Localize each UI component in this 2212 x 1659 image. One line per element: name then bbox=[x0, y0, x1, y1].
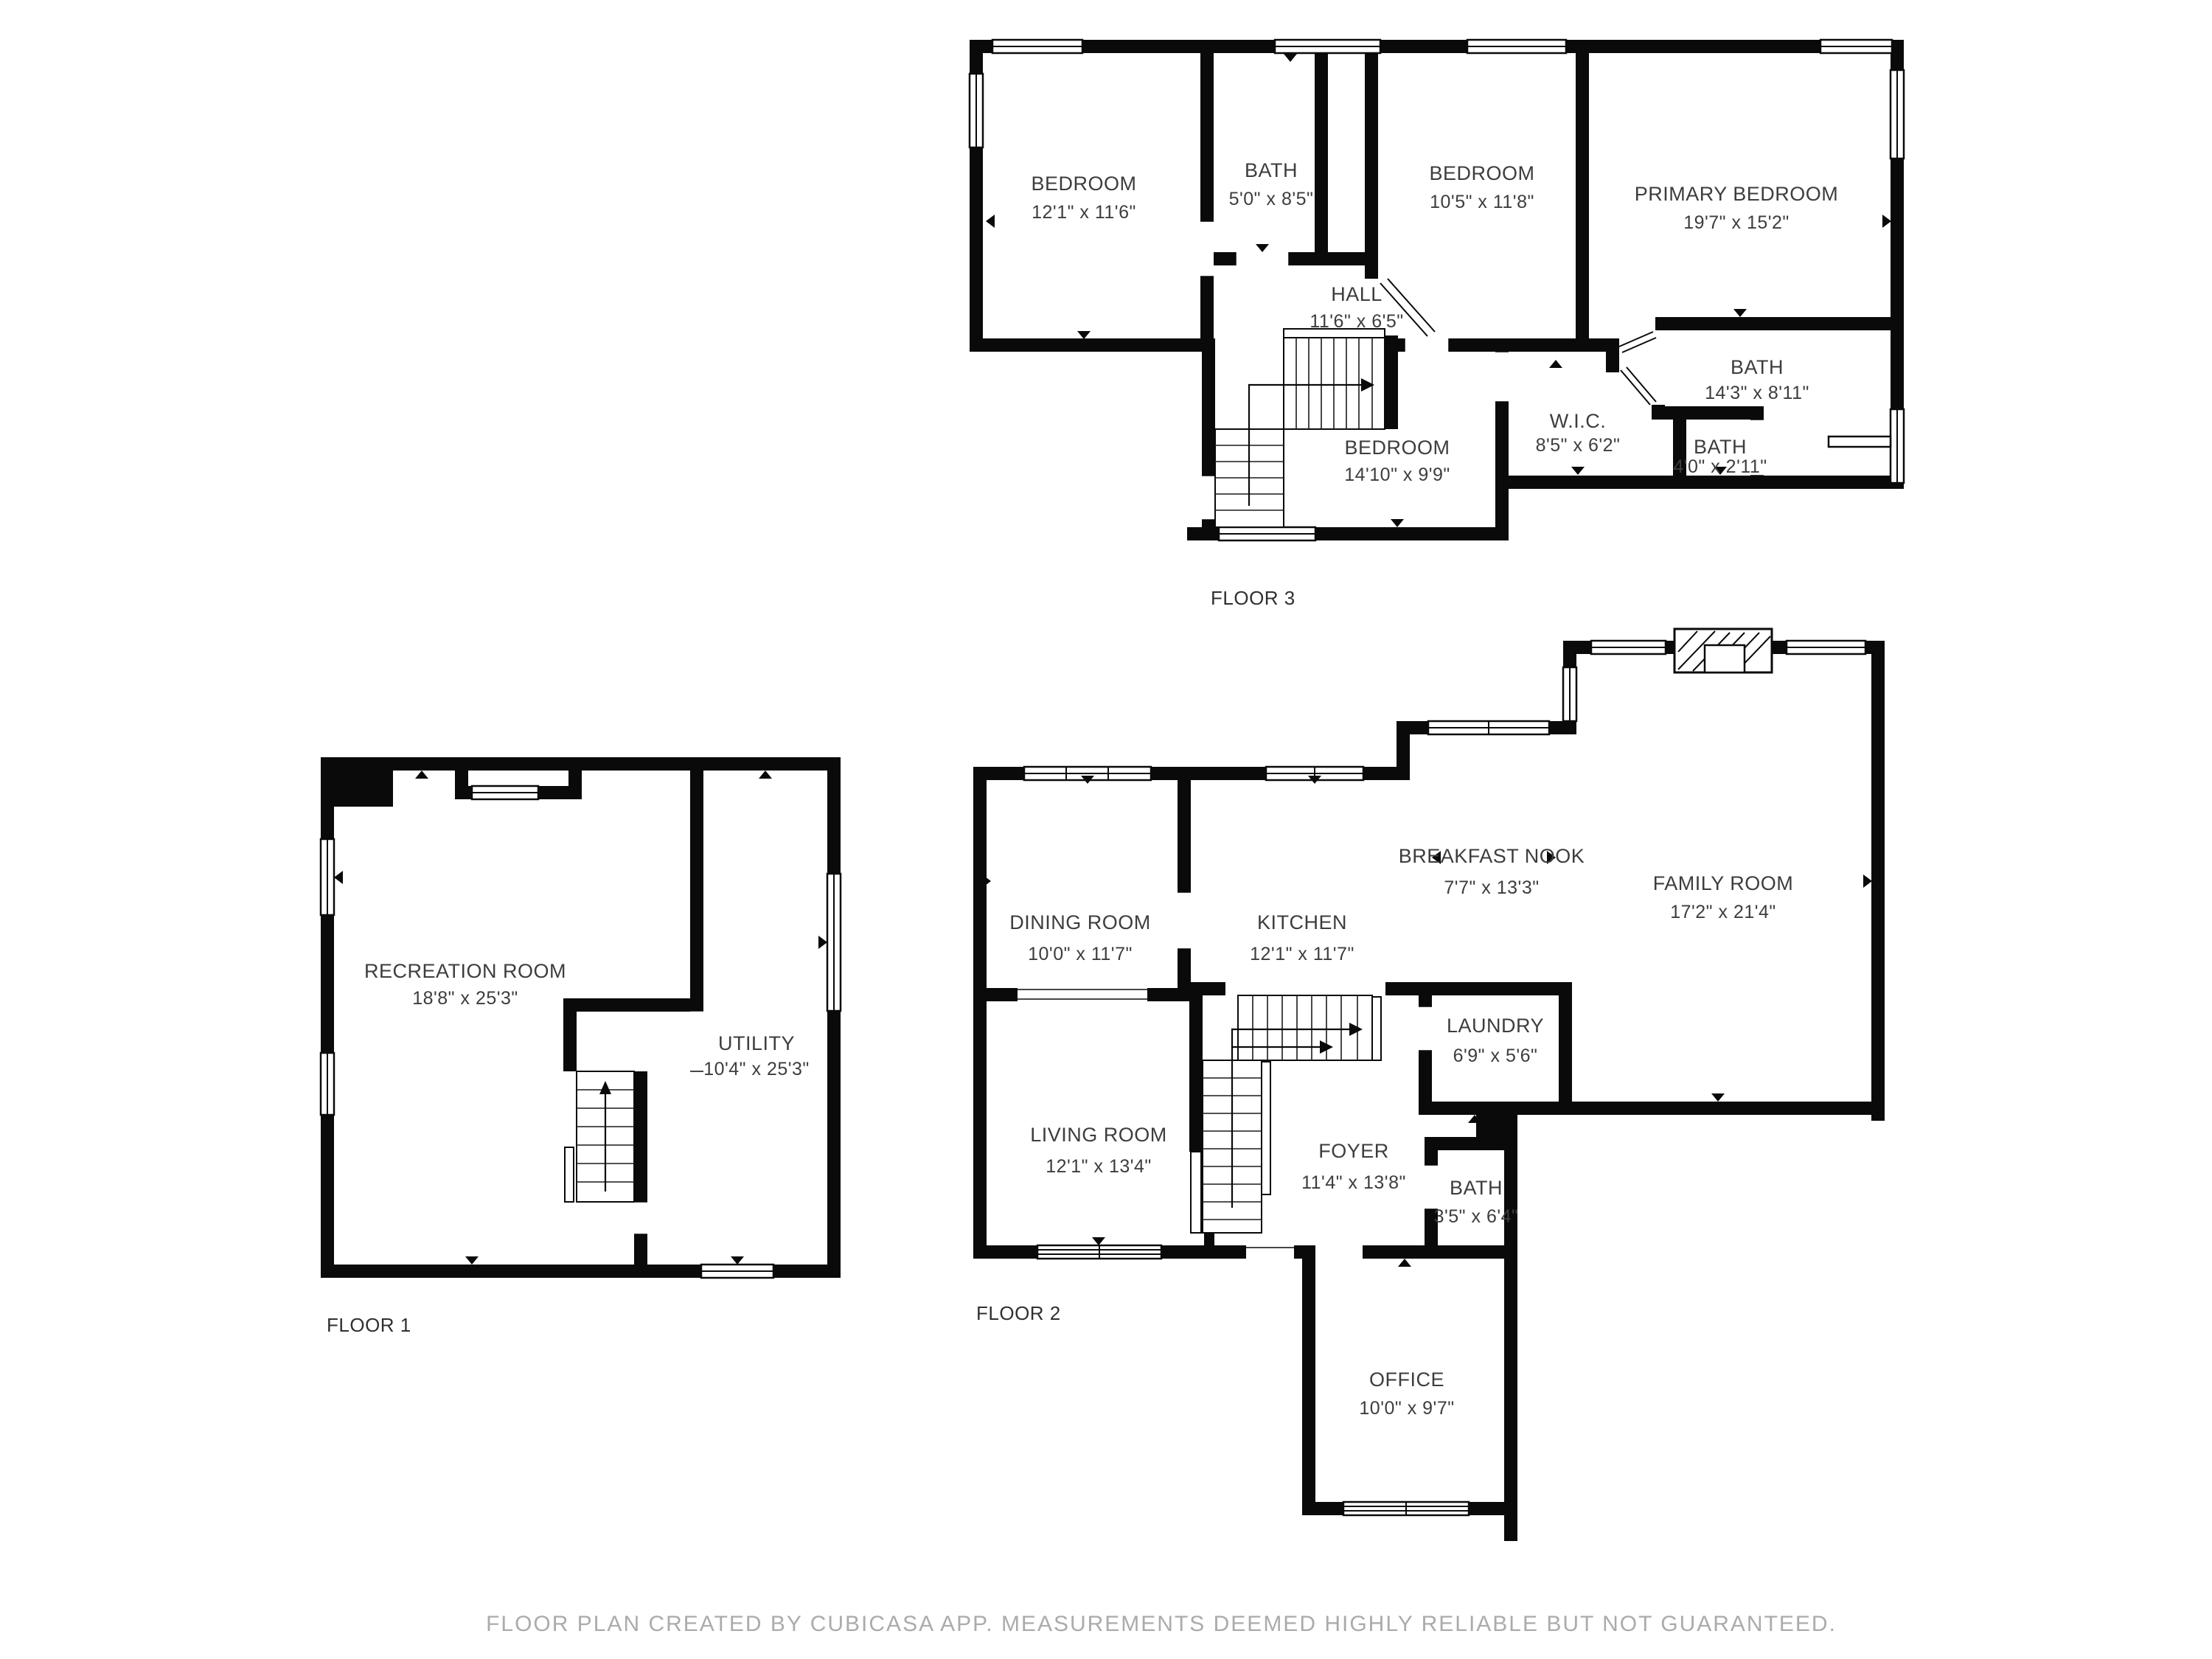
floor2-family-dims: 17'2" x 21'4" bbox=[1670, 902, 1776, 922]
floor2-room-labels: DINING ROOM 10'0" x 11'7" KITCHEN 12'1" … bbox=[1009, 845, 1793, 1419]
floor3-plan: BEDROOM 12'1" x 11'6" BATH 5'0" x 8'5" B… bbox=[970, 40, 1904, 609]
floor3-bath-a-name: BATH bbox=[1245, 159, 1298, 181]
floor3-bedroom-c-name: BEDROOM bbox=[1344, 437, 1450, 459]
floor3-primary-bedroom-dims: 19'7" x 15'2" bbox=[1683, 212, 1790, 233]
floor3-hall-name: HALL bbox=[1331, 283, 1382, 305]
floor3-bedroom-c-dims: 14'10" x 9'9" bbox=[1344, 465, 1450, 485]
floor2-bath-name: BATH bbox=[1450, 1177, 1503, 1199]
floor2-windows bbox=[1024, 641, 1865, 1515]
floor3-bath-a-dims: 5'0" x 8'5" bbox=[1229, 189, 1314, 209]
floor2-breakfast-dims: 7'7" x 13'3" bbox=[1444, 877, 1539, 898]
floor2-dining-name: DINING ROOM bbox=[1009, 911, 1151, 933]
floor3-bath-b-dims: 14'3" x 8'11" bbox=[1705, 383, 1809, 403]
floor2-label: FLOOR 2 bbox=[976, 1302, 1061, 1324]
floor2-office-dims: 10'0" x 9'7" bbox=[1359, 1398, 1454, 1419]
floor1-label: FLOOR 1 bbox=[327, 1314, 411, 1336]
floor2-living-dims: 12'1" x 13'4" bbox=[1046, 1156, 1152, 1177]
floor2-kitchen-dims: 12'1" x 11'7" bbox=[1250, 944, 1354, 964]
floor1-plan: RECREATION ROOM 18'8" x 25'3" UTILITY 10… bbox=[321, 757, 841, 1336]
floor2-dining-dims: 10'0" x 11'7" bbox=[1028, 944, 1133, 964]
floor1-recreation-dims: 18'8" x 25'3" bbox=[412, 988, 518, 1009]
floor1-recreation-name: RECREATION ROOM bbox=[364, 960, 566, 982]
footer-disclaimer: FLOOR PLAN CREATED BY CUBICASA APP. MEAS… bbox=[486, 1612, 1837, 1636]
floor3-bedroom-a-dims: 12'1" x 11'6" bbox=[1032, 202, 1136, 223]
floor-plan-image: BEDROOM 12'1" x 11'6" BATH 5'0" x 8'5" B… bbox=[0, 0, 2212, 1659]
floor3-hall-dims: 11'6" x 6'5" bbox=[1310, 311, 1403, 332]
floor2-breakfast-name: BREAKFAST NOOK bbox=[1399, 845, 1585, 867]
floor3-wic-name: W.I.C. bbox=[1550, 410, 1607, 432]
floor3-primary-bedroom-name: PRIMARY BEDROOM bbox=[1635, 183, 1839, 205]
floor3-stairs bbox=[1215, 329, 1385, 527]
floor-plan-page: BEDROOM 12'1" x 11'6" BATH 5'0" x 8'5" B… bbox=[0, 0, 2212, 1659]
floor1-utility-name: UTILITY bbox=[718, 1032, 795, 1054]
floor1-room-labels: RECREATION ROOM 18'8" x 25'3" UTILITY 10… bbox=[364, 960, 810, 1079]
floor2-foyer-dims: 11'4" x 13'8" bbox=[1301, 1172, 1406, 1193]
floor2-living-name: LIVING ROOM bbox=[1030, 1124, 1167, 1146]
floor3-label: FLOOR 3 bbox=[1211, 587, 1295, 609]
floor3-bedroom-b-dims: 10'5" x 11'8" bbox=[1430, 192, 1534, 212]
floor2-office-name: OFFICE bbox=[1369, 1368, 1444, 1391]
floor2-stairs bbox=[1191, 995, 1381, 1233]
floor2-plan: DINING ROOM 10'0" x 11'7" KITCHEN 12'1" … bbox=[973, 629, 1885, 1541]
floor3-bedroom-a-name: BEDROOM bbox=[1031, 173, 1136, 195]
floor3-bedroom-b-name: BEDROOM bbox=[1429, 162, 1534, 184]
floor3-bath-c-dims: 4'0" x 2'11" bbox=[1673, 456, 1767, 477]
floor3-bath-b-name: BATH bbox=[1731, 356, 1784, 378]
floor3-bath-c-name: BATH bbox=[1694, 436, 1747, 458]
floor2-foyer-name: FOYER bbox=[1318, 1140, 1389, 1162]
floor2-family-name: FAMILY ROOM bbox=[1653, 872, 1794, 894]
floor2-chimney bbox=[1674, 629, 1772, 672]
floor2-laundry-name: LAUNDRY bbox=[1447, 1015, 1544, 1037]
floor1-utility-dims: 10'4" x 25'3" bbox=[703, 1059, 810, 1079]
floor3-wic-dims: 8'5" x 6'2" bbox=[1536, 435, 1621, 456]
floor2-laundry-dims: 6'9" x 5'6" bbox=[1453, 1046, 1538, 1066]
floor1-stairs bbox=[565, 1071, 634, 1202]
floor2-kitchen-name: KITCHEN bbox=[1257, 911, 1347, 933]
floor2-bath-dims: 3'5" x 6'4" bbox=[1434, 1206, 1519, 1227]
